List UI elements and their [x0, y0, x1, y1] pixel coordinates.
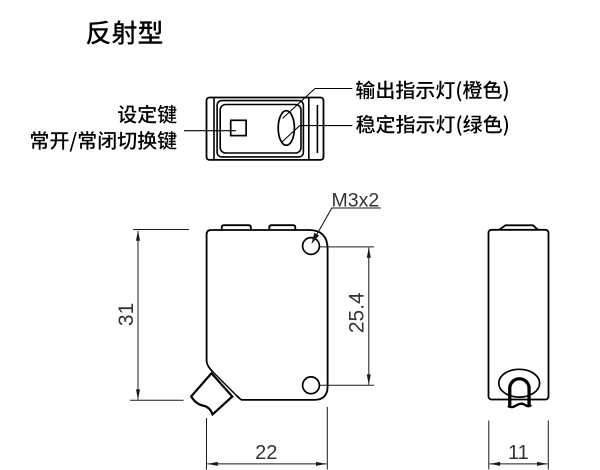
svg-text:31: 31	[115, 303, 138, 326]
svg-text:22: 22	[255, 442, 277, 464]
svg-text:25.4: 25.4	[345, 292, 368, 333]
svg-text:11: 11	[508, 442, 529, 464]
